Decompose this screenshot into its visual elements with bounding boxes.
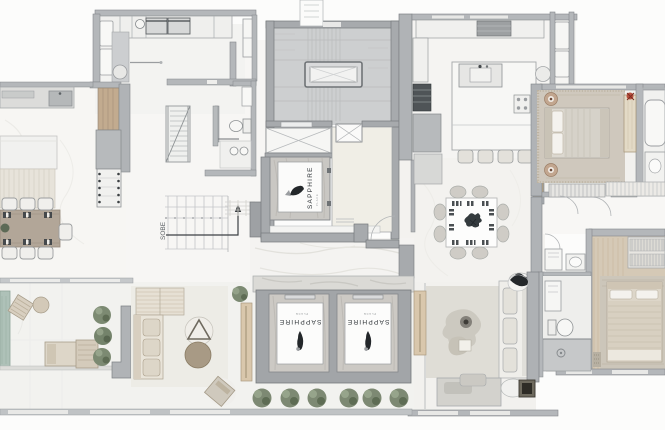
- svg-text:SAPPHIRE: SAPPHIRE: [347, 318, 390, 325]
- svg-text:SAPPHIRE: SAPPHIRE: [307, 166, 314, 209]
- svg-text:SAPPHIRE: SAPPHIRE: [279, 318, 322, 325]
- svg-text:PLACE: PLACE: [315, 193, 319, 206]
- svg-text:SOBE: SOBE: [160, 221, 167, 240]
- svg-text:PLACE: PLACE: [295, 312, 308, 316]
- svg-text:PLACE: PLACE: [363, 312, 376, 316]
